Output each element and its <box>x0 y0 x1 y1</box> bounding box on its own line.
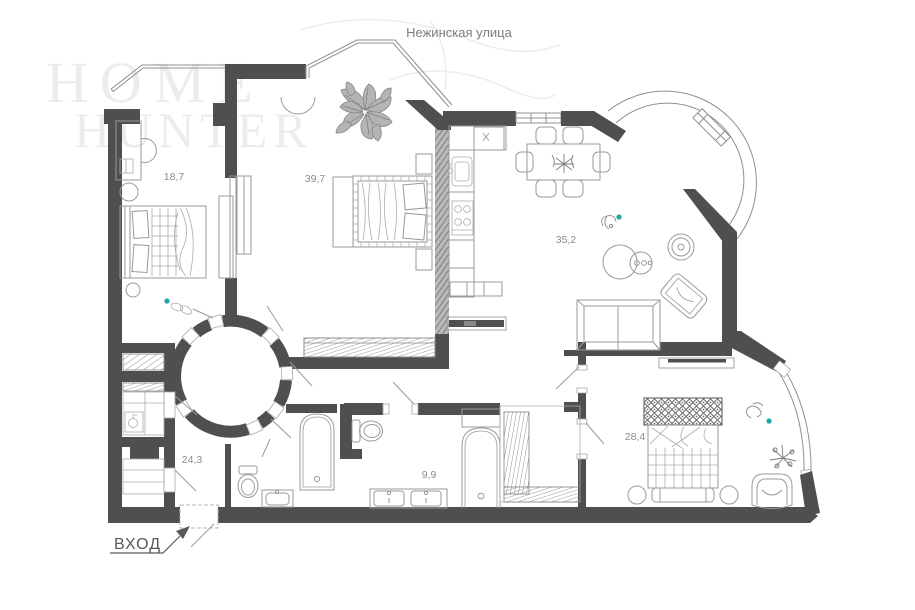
svg-text:24,3: 24,3 <box>182 454 203 466</box>
svg-text:28,4: 28,4 <box>625 431 646 443</box>
svg-text:ВХОД: ВХОД <box>114 536 161 553</box>
svg-text:18,7: 18,7 <box>164 171 185 183</box>
svg-text:39,7: 39,7 <box>305 173 326 185</box>
svg-text:Нежинская улица: Нежинская улица <box>406 25 512 40</box>
svg-text:9,9: 9,9 <box>422 469 437 481</box>
svg-text:35,2: 35,2 <box>556 234 577 246</box>
